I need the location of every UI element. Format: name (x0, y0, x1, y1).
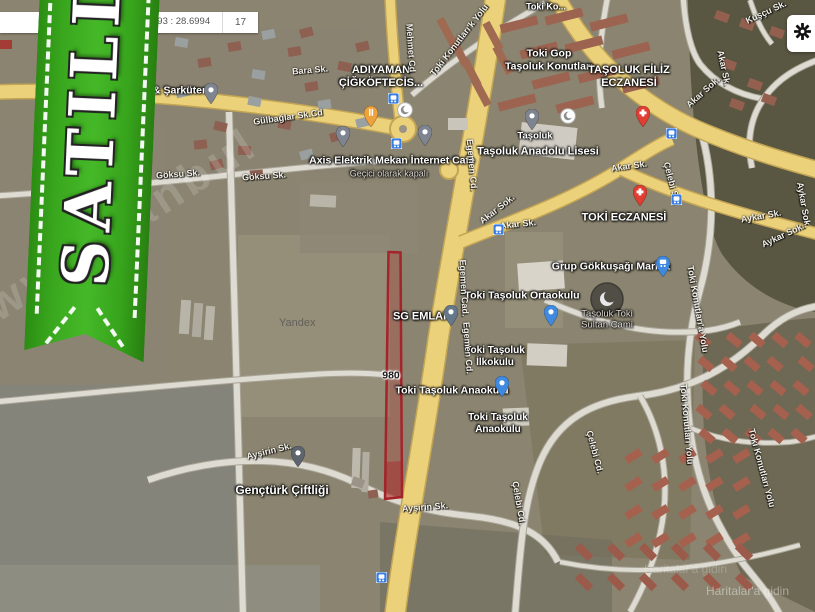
poi-label-line: Taşoluk (517, 130, 552, 141)
poi-label-line: Grup Gökkuşağı Market (552, 261, 670, 274)
poi-label-gencturk-ciftligi[interactable]: Gençtürk Çiftliği (235, 483, 328, 497)
poi-label-line: Taşoluk Toki (581, 309, 633, 320)
poi-label-line: ADIYAMAN (339, 64, 423, 77)
poi-label-line: Axis Elektrik Mekan İnternet Cafe (309, 155, 475, 168)
poi-label-line: Gençtürk Çiftliği (235, 483, 328, 497)
sold-ribbon: SATILDI (24, 0, 164, 362)
poi-label-line: Toki Taşoluk Ortaokulu (464, 290, 579, 303)
poi-label-line: TAŞOLUK FİLİZ (588, 64, 670, 77)
poi-label-line: Sultan Cami (581, 320, 633, 331)
poi-label-tasoluk-anadolu-lisesi[interactable]: Taşoluk Anadolu Lisesi (477, 145, 599, 158)
map-attribution-ghost: Haritalar'a gidin (644, 562, 727, 576)
settings-button[interactable] (787, 15, 815, 52)
poi-label-tasoluk[interactable]: Taşoluk (517, 130, 552, 141)
poi-label-line: ÇİĞKÖFTECİS... (339, 77, 423, 90)
poi-label-line: Toki Taşoluk (468, 412, 528, 424)
poi-label-line: Taşoluk Konutları (505, 60, 593, 73)
poi-label-grup-gokkusagi-market[interactable]: Grup Gökkuşağı Market (552, 261, 670, 274)
poi-label-line: Toki Gop (505, 47, 593, 60)
poi-label-line: İlkokulu (465, 357, 525, 369)
gear-icon (794, 23, 811, 45)
poi-label-axis-status: Geçici olarak kapalı (350, 169, 429, 180)
poi-label-line: Taşoluk Anadolu Lisesi (477, 145, 599, 158)
poi-label-toki-eczanesi[interactable]: TOKİ ECZANESİ (582, 211, 667, 224)
poi-label-toki-konutlari-partial[interactable]: Toki Ko... (526, 2, 566, 13)
poi-label-line: ECZANESİ (588, 77, 670, 90)
yandex-logo: Yandex (279, 317, 316, 329)
poi-label-sarkuteri[interactable]: & Şarküteri (153, 85, 209, 98)
poi-label-tasoluk-filiz-eczanesi[interactable]: TAŞOLUK FİLİZECZANESİ (588, 64, 670, 90)
poi-label-adiyaman-cigkoftecisi[interactable]: ADIYAMANÇİĞKÖFTECİS... (339, 64, 423, 90)
map-screenshot: www.istanbul Yandex ADIYAMANÇİĞKÖFTECİS.… (0, 0, 815, 612)
poi-label-sg-emlak[interactable]: SG EMLAK (393, 310, 451, 323)
poi-label-toki-tasoluk-ilkokulu[interactable]: Toki Taşolukİlkokulu (465, 345, 525, 369)
poi-label-line: Toki Taşoluk Anaokulu (396, 385, 509, 398)
poi-label-line: TOKİ ECZANESİ (582, 211, 667, 224)
poi-label-line: Toki Ko... (526, 2, 566, 13)
poi-label-toki-tasoluk-anaokulu-2[interactable]: Toki TaşolukAnaokulu (468, 412, 528, 436)
poi-label-line: Toki Taşoluk (465, 345, 525, 357)
poi-label-tasoluk-toki-sultan-cami: Taşoluk TokiSultan Cami (581, 309, 633, 332)
poi-label-toki-gop-konutlari[interactable]: Toki GopTaşoluk Konutları (505, 47, 593, 72)
poi-label-line: Geçici olarak kapalı (350, 169, 429, 180)
poi-label-line: 980 (382, 370, 400, 383)
poi-label-toki-tasoluk-anaokulu[interactable]: Toki Taşoluk Anaokulu (396, 385, 509, 398)
poi-label-line: SG EMLAK (393, 310, 451, 323)
poi-label-road-number-980: 980 (382, 370, 400, 383)
poi-label-axis-internet-cafe[interactable]: Axis Elektrik Mekan İnternet Cafe (309, 155, 475, 168)
poi-label-line: Anaokulu (468, 424, 528, 436)
sold-ribbon-label: SATILDI (26, 0, 165, 322)
poi-label-toki-tasoluk-ortaokulu[interactable]: Toki Taşoluk Ortaokulu (464, 290, 579, 303)
map-attribution-link[interactable]: Haritalar'a gidin (706, 584, 789, 598)
poi-label-line: & Şarküteri (153, 85, 209, 98)
coordinates-value: 093 : 28.6994 (152, 16, 210, 27)
zoom-level-value: 17 (222, 12, 258, 33)
